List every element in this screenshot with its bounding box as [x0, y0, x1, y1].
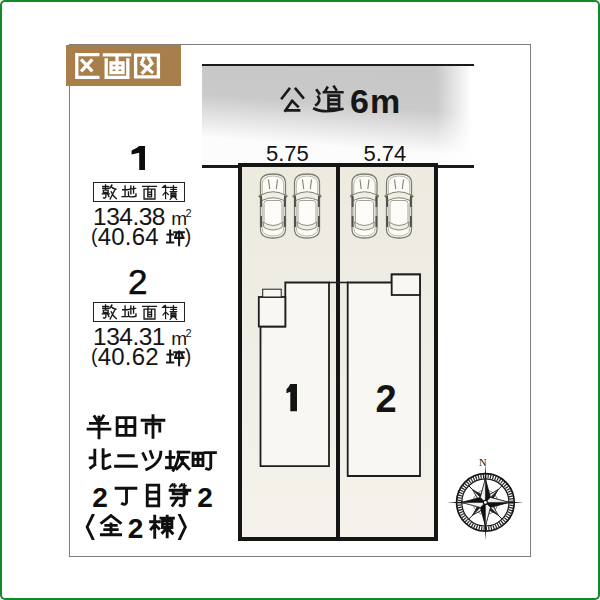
svg-text:N: N — [479, 457, 487, 468]
